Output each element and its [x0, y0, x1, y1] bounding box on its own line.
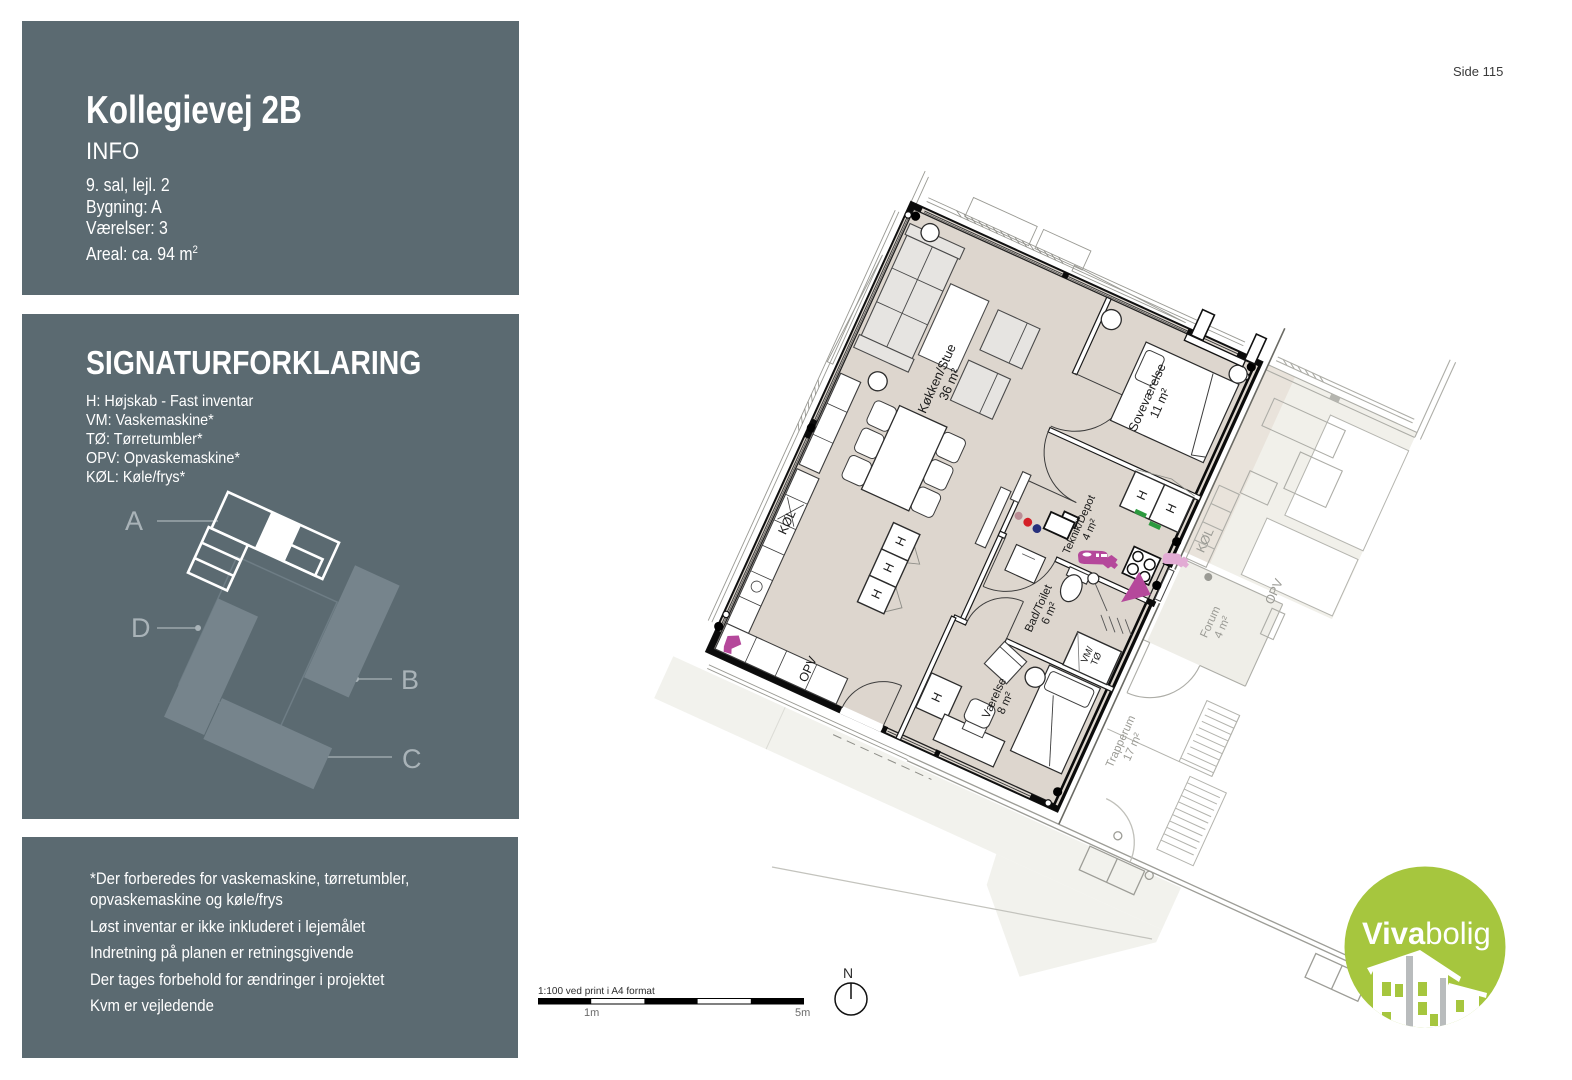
svg-text:1:100 ved print i A4 format: 1:100 ved print i A4 format — [538, 986, 655, 997]
svg-text:N: N — [843, 965, 853, 981]
svg-text:D: D — [131, 613, 151, 643]
svg-text:5m: 5m — [795, 1007, 810, 1019]
svg-text:Vivabolig: Vivabolig — [1362, 916, 1491, 951]
svg-text:1m: 1m — [584, 1007, 599, 1019]
svg-text:A: A — [125, 506, 143, 536]
svg-text:C: C — [402, 744, 422, 774]
svg-text:B: B — [401, 665, 419, 695]
